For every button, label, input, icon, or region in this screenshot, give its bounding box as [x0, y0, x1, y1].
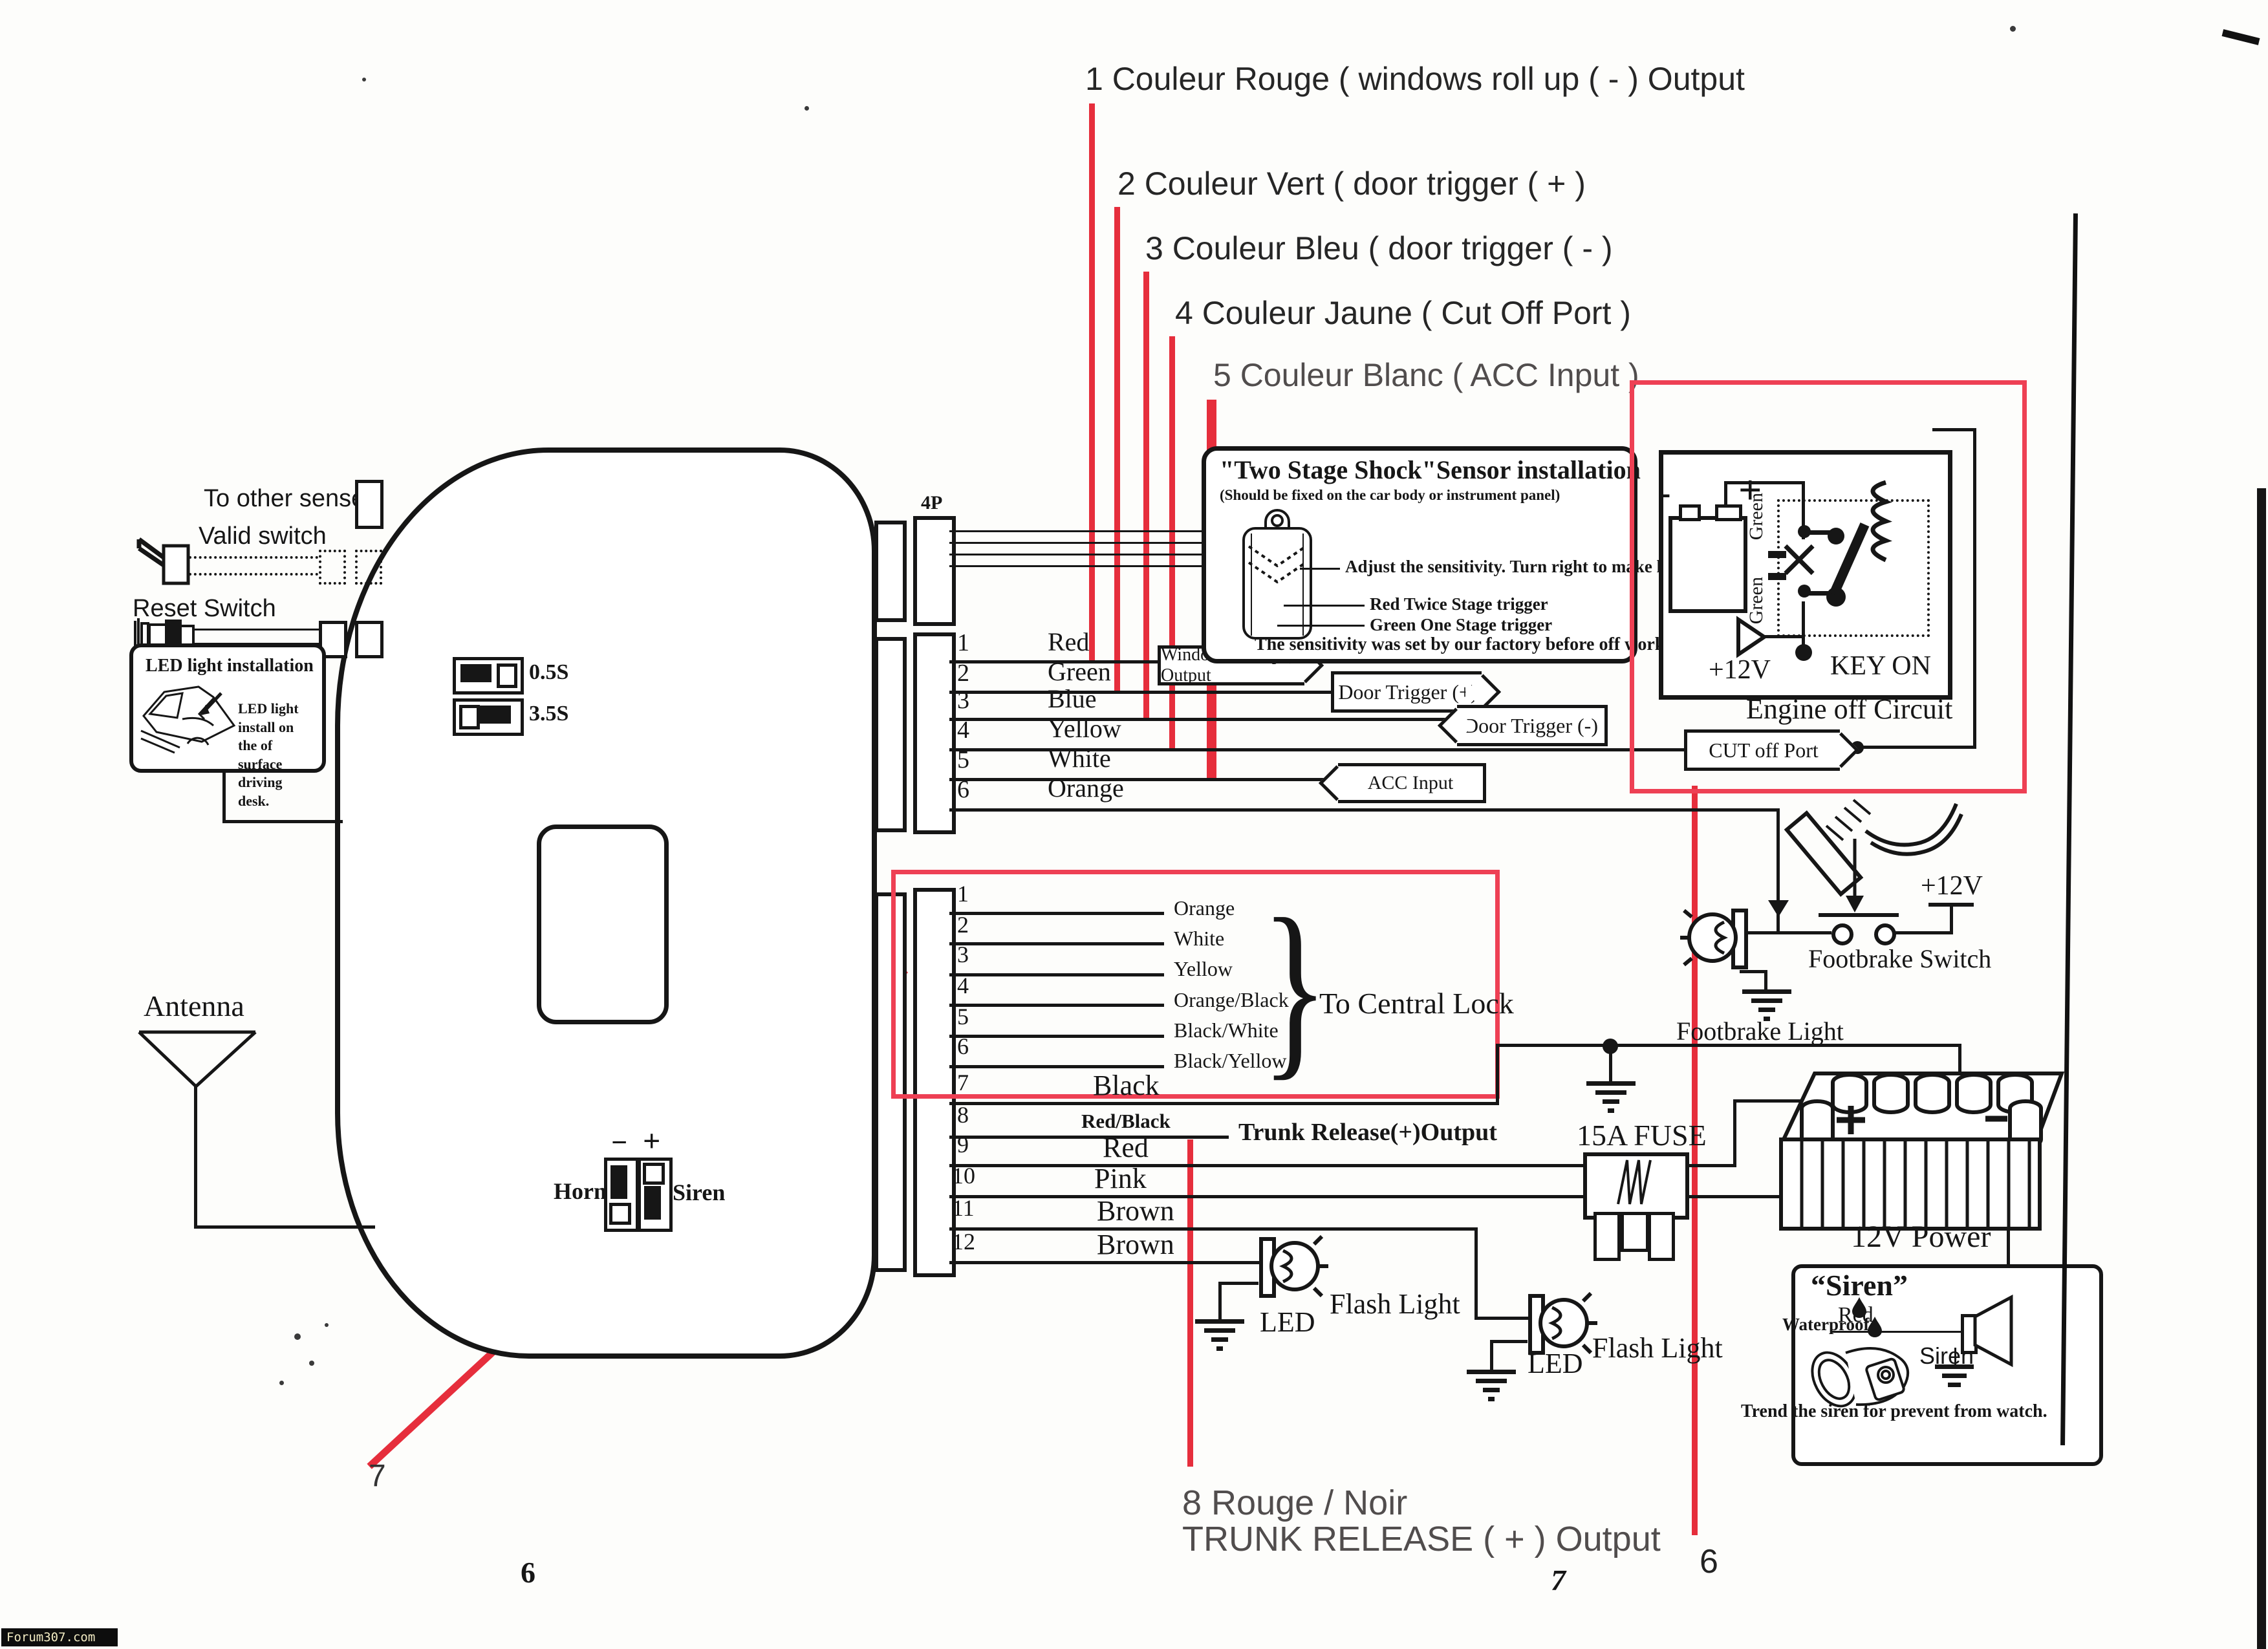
siren-plus-sign: +: [643, 1125, 660, 1158]
4p-connector-block: [913, 516, 956, 626]
red-line-6: [1692, 786, 1698, 1535]
4p-label: 4P: [921, 493, 942, 513]
ground-icon: [1467, 1370, 1516, 1401]
leader-line: [1277, 625, 1365, 627]
pin-number: 11: [952, 1196, 975, 1221]
page-number-right: 7: [1551, 1565, 1566, 1596]
watermark-text: Forum307.com: [1, 1630, 95, 1644]
4p-wire: [949, 554, 1203, 555]
wire-color-label: Red: [1048, 629, 1089, 656]
aux-wire-label: Brown: [1097, 1196, 1174, 1226]
siren-device-label: Siren: [1919, 1344, 1974, 1368]
green-wire-label-bottom: Green: [1746, 577, 1767, 624]
horn-jumper-open: [609, 1203, 631, 1225]
shock-footer-text: The sensitivity was set by our factory b…: [1255, 635, 1669, 654]
cl-wire-orange-black: [949, 1004, 1164, 1007]
toggle-switch-icon: [133, 532, 197, 587]
red-line-1: [1089, 103, 1095, 660]
ground-drop-wire: [1609, 1044, 1612, 1081]
wire-9-red: [1681, 1164, 1736, 1167]
footbrake-bulb-icon: [1685, 905, 1750, 973]
pin-number: 5: [957, 748, 969, 773]
flash1-ground-wire: [1218, 1282, 1222, 1319]
wire-12-brown: [949, 1261, 1261, 1264]
wire-9-red: [1733, 1099, 1736, 1167]
annotation-1-red: 1 Couleur Rouge ( windows roll up ( - ) …: [1085, 62, 1745, 96]
annotation-3-blue: 3 Couleur Bleu ( door trigger ( - ): [1145, 232, 1613, 266]
marker-7: 7: [369, 1460, 386, 1493]
fuse-element-icon: [1614, 1156, 1653, 1208]
cl-wire-yellow: [949, 973, 1164, 976]
siren-jumper-filled: [644, 1186, 661, 1220]
ground-icon: [1586, 1081, 1636, 1113]
red-line-3: [1143, 272, 1149, 718]
wire-color-label: White: [1048, 745, 1111, 772]
reset-port-box: [355, 621, 383, 658]
marker-6: 6: [1700, 1544, 1718, 1580]
horn-speaker-icon: [1974, 1295, 2014, 1367]
watermark-bar: Forum307.com: [1, 1628, 118, 1646]
pin-number: 8: [957, 1103, 969, 1128]
fuse-label: 15A FUSE: [1577, 1120, 1707, 1151]
wiring-diagram-page: 1 Couleur Rouge ( windows roll up ( - ) …: [0, 0, 2268, 1649]
wire-6-arrowhead: [1768, 900, 1789, 917]
antenna-wire: [194, 1085, 197, 1229]
flash2-label: Flash Light: [1592, 1333, 1723, 1363]
key-on-label: KEY ON: [1830, 652, 1931, 680]
annotation-8-line1: 8 Rouge / Noir: [1182, 1485, 1407, 1522]
pin-number: 6: [957, 777, 969, 803]
led-install-caption: LED light install on the of surface driv…: [238, 700, 312, 811]
valid-switch-wire: [189, 573, 318, 576]
wire-color-label: Blue: [1048, 685, 1097, 713]
engine-loop-wire: [1932, 428, 1976, 431]
wire-3-blue: [949, 718, 1457, 721]
engine-loop-wire: [1860, 746, 1976, 749]
footbrake-bulb-ground-wire: [1740, 970, 1767, 973]
annotation-4-yellow: 4 Couleur Jaune ( Cut Off Port ): [1175, 296, 1631, 330]
antenna-label: Antenna: [144, 991, 244, 1022]
4p-wire: [949, 542, 1203, 544]
flash2-ground-wire: [1490, 1340, 1528, 1343]
tag-cut-off-port-text: CUT off Port: [1709, 738, 1819, 762]
wire-9-red: [949, 1164, 1583, 1167]
contact-bar: [1768, 551, 1786, 558]
scan-edge-line: [2060, 213, 2078, 1445]
unit-inner-cutout: [537, 824, 669, 1024]
wire-11-brown: [1474, 1317, 1531, 1320]
aux-wire-label: Red: [1103, 1133, 1149, 1163]
pin-number: 2: [957, 661, 969, 687]
footbrake-wire: [1950, 904, 1953, 934]
wire-color-label: Green: [1048, 658, 1111, 685]
tag-door-trigger-neg-text: Door Trigger (-): [1463, 714, 1598, 738]
tag-acc-input-text: ACC Input: [1368, 772, 1454, 794]
red-line-2: [1114, 207, 1120, 691]
wire-8-red-black: [949, 1136, 1229, 1139]
engine-wire: [1724, 481, 1804, 484]
valid-port-box: [319, 550, 346, 585]
footbrake-switch-contact: [1874, 923, 1896, 945]
central-lock-brace: }: [1261, 885, 1328, 1092]
ground-icon: [1195, 1319, 1244, 1351]
dip-0-5s-on-block: [460, 664, 491, 682]
shock-subtitle: (Should be fixed on the car body or inst…: [1220, 488, 1560, 503]
cl-wire-black-white: [949, 1035, 1164, 1038]
engine-loop-wire: [1973, 428, 1976, 749]
12v-t-bar: [1928, 903, 1974, 907]
pin-number: 1: [957, 630, 969, 656]
wire-5-white: [949, 778, 1338, 781]
wire-color-label: Orange: [1048, 775, 1124, 802]
dip-0-5s-off-block: [497, 663, 517, 688]
car-battery-sketch: [1772, 1049, 2069, 1236]
contact-bar: [1768, 573, 1786, 580]
pin-number: 9: [957, 1133, 969, 1158]
senser-port-box: [355, 480, 383, 529]
shock-red-trigger-text: Red Twice Stage trigger: [1370, 595, 1548, 613]
pin-number: 4: [957, 718, 969, 744]
4p-wire: [949, 530, 1203, 532]
leader-line: [1300, 568, 1340, 570]
cl-wire-label: Orange: [1174, 898, 1235, 920]
horn-minus-sign: −: [611, 1128, 627, 1158]
pin-number: 10: [952, 1164, 975, 1189]
pin-number: 3: [957, 688, 969, 714]
valid-switch-label: Valid switch: [199, 524, 327, 550]
reset-rod: [193, 629, 319, 630]
wire-7-black: [949, 1102, 1499, 1105]
engine-wire: [1764, 635, 1804, 638]
valid-port-box: [355, 550, 382, 585]
antenna-wire: [194, 1225, 375, 1229]
aux-wire-label: Black: [1093, 1071, 1160, 1101]
cl-wire-black-yellow: [949, 1065, 1164, 1068]
footbrake-wire: [1743, 931, 1831, 934]
green-wire-label-top: Green: [1746, 493, 1767, 540]
pin-number: 3: [957, 943, 969, 967]
tag-door-trigger-neg: Door Trigger (-): [1457, 705, 1608, 746]
4p-connector-stub: [874, 521, 907, 622]
relay-link: [1804, 530, 1834, 535]
to-other-senser-label: To other senser: [204, 486, 373, 512]
pin-number: 4: [957, 974, 969, 998]
antenna-icon: [133, 1027, 262, 1092]
dip-3-5s-off-block: [459, 705, 480, 729]
9v-battery: [1669, 516, 1747, 613]
footbrake-switch-label: Footbrake Switch: [1808, 945, 1991, 973]
engine-minus: -: [1659, 476, 1670, 512]
pin-number: 5: [957, 1005, 969, 1029]
cl-wire-orange: [949, 912, 1164, 915]
fuse-prong: [1648, 1212, 1675, 1261]
flash1-led-label: LED: [1260, 1308, 1315, 1337]
car-dashboard-sketch: [137, 680, 241, 758]
shock-green-trigger-text: Green One Stage trigger: [1370, 616, 1552, 634]
wire-7-black: [1496, 1044, 1499, 1105]
trunk-release-label: Trunk Release(+)Output: [1238, 1120, 1497, 1146]
footbrake-12v-label: +12V: [1921, 872, 1983, 900]
led-box-wire: [222, 820, 343, 823]
central-lock-label: To Central Lock: [1319, 988, 1514, 1019]
flash-bulb-icon: [1257, 1234, 1322, 1302]
battery-label: 12V Power: [1851, 1221, 1991, 1253]
flash1-label: Flash Light: [1330, 1289, 1460, 1319]
led-install-title: LED light installation: [146, 656, 314, 675]
flash2-led-label: LED: [1528, 1349, 1583, 1379]
footbrake-plate: [1819, 913, 1899, 917]
dip-0-5s-label: 0.5S: [529, 661, 568, 684]
cl-wire-white: [949, 942, 1164, 945]
tag-acc-input: ACC Input: [1338, 763, 1486, 803]
pin-number: 6: [957, 1035, 969, 1059]
wire-11-brown: [949, 1227, 1478, 1231]
dip-3-5s-label: 3.5S: [529, 702, 568, 726]
main-connector-stub: [874, 637, 907, 832]
tag-cut-off-port: CUT off Port: [1684, 729, 1840, 771]
dip-3-5s-on-block: [480, 706, 511, 724]
arrow-tip-icon: [1319, 765, 1354, 801]
horn-label: Horn: [554, 1180, 607, 1204]
fuse-prong: [1593, 1212, 1621, 1261]
footbrake-wire: [1895, 931, 1953, 934]
wire-11-brown: [1474, 1227, 1478, 1319]
footbrake-light-label: Footbrake Light: [1676, 1018, 1844, 1045]
siren-jumper-label: Siren: [673, 1181, 725, 1205]
pin-number: 1: [957, 882, 969, 907]
fuse-body: [1621, 1212, 1649, 1252]
engine-off-caption: Engine off Circuit: [1746, 695, 1952, 724]
siren-caption: Trend the siren for prevent from watch.: [1741, 1402, 2047, 1421]
junction-dot: [1795, 644, 1812, 661]
pin-number: 2: [957, 913, 969, 938]
pin-number: 7: [957, 1071, 969, 1095]
tag-door-trigger-pos-text: Door Trigger (+): [1338, 680, 1477, 704]
9v-terminal: [1679, 504, 1701, 521]
wire-7-black: [1496, 1044, 1961, 1047]
valid-switch-wire: [189, 556, 318, 559]
flash2-ground-wire: [1490, 1340, 1493, 1370]
shock-title: "Two Stage Shock"Sensor installation: [1220, 457, 1641, 484]
cl-wire-label: Yellow: [1174, 958, 1233, 980]
aux-wire-label: Brown: [1097, 1230, 1174, 1260]
aux-wire-label: Red/Black: [1081, 1111, 1171, 1132]
horn-jumper-filled: [610, 1165, 627, 1199]
amp-triangle-icon: [1737, 618, 1766, 656]
page-number-left: 6: [521, 1557, 535, 1588]
4p-wire: [949, 565, 1203, 567]
annotation-5-white: 5 Couleur Blanc ( ACC Input ): [1213, 358, 1639, 393]
annotation-8-line2: TRUNK RELEASE ( + ) Output: [1182, 1521, 1661, 1558]
siren-jumper-open: [643, 1163, 665, 1185]
aux-wire-label: Pink: [1094, 1164, 1147, 1194]
engine-wire: [1724, 481, 1727, 506]
pin-number: 12: [952, 1230, 975, 1255]
water-drop-icon: [1851, 1296, 1868, 1318]
wire-2-green: [949, 691, 1331, 694]
scan-mark: [2222, 29, 2260, 45]
relay-coil-icon: [1860, 480, 1890, 565]
engine-12v-label: +12V: [1709, 656, 1771, 684]
wire-color-label: Yellow: [1048, 715, 1121, 742]
red-line-8: [1187, 1139, 1193, 1467]
scan-edge-strip: [2257, 488, 2266, 1649]
footbrake-switch-contact: [1831, 923, 1853, 945]
cl-wire-label: White: [1174, 928, 1224, 950]
led-box-wire: [222, 769, 226, 823]
annotation-2-green: 2 Couleur Vert ( door trigger ( + ): [1118, 167, 1586, 201]
relay-dotted-outline: [1777, 499, 1930, 637]
wire-6-orange: [949, 808, 1778, 812]
flash1-ground-wire: [1218, 1282, 1258, 1285]
leader-line: [1284, 605, 1365, 607]
